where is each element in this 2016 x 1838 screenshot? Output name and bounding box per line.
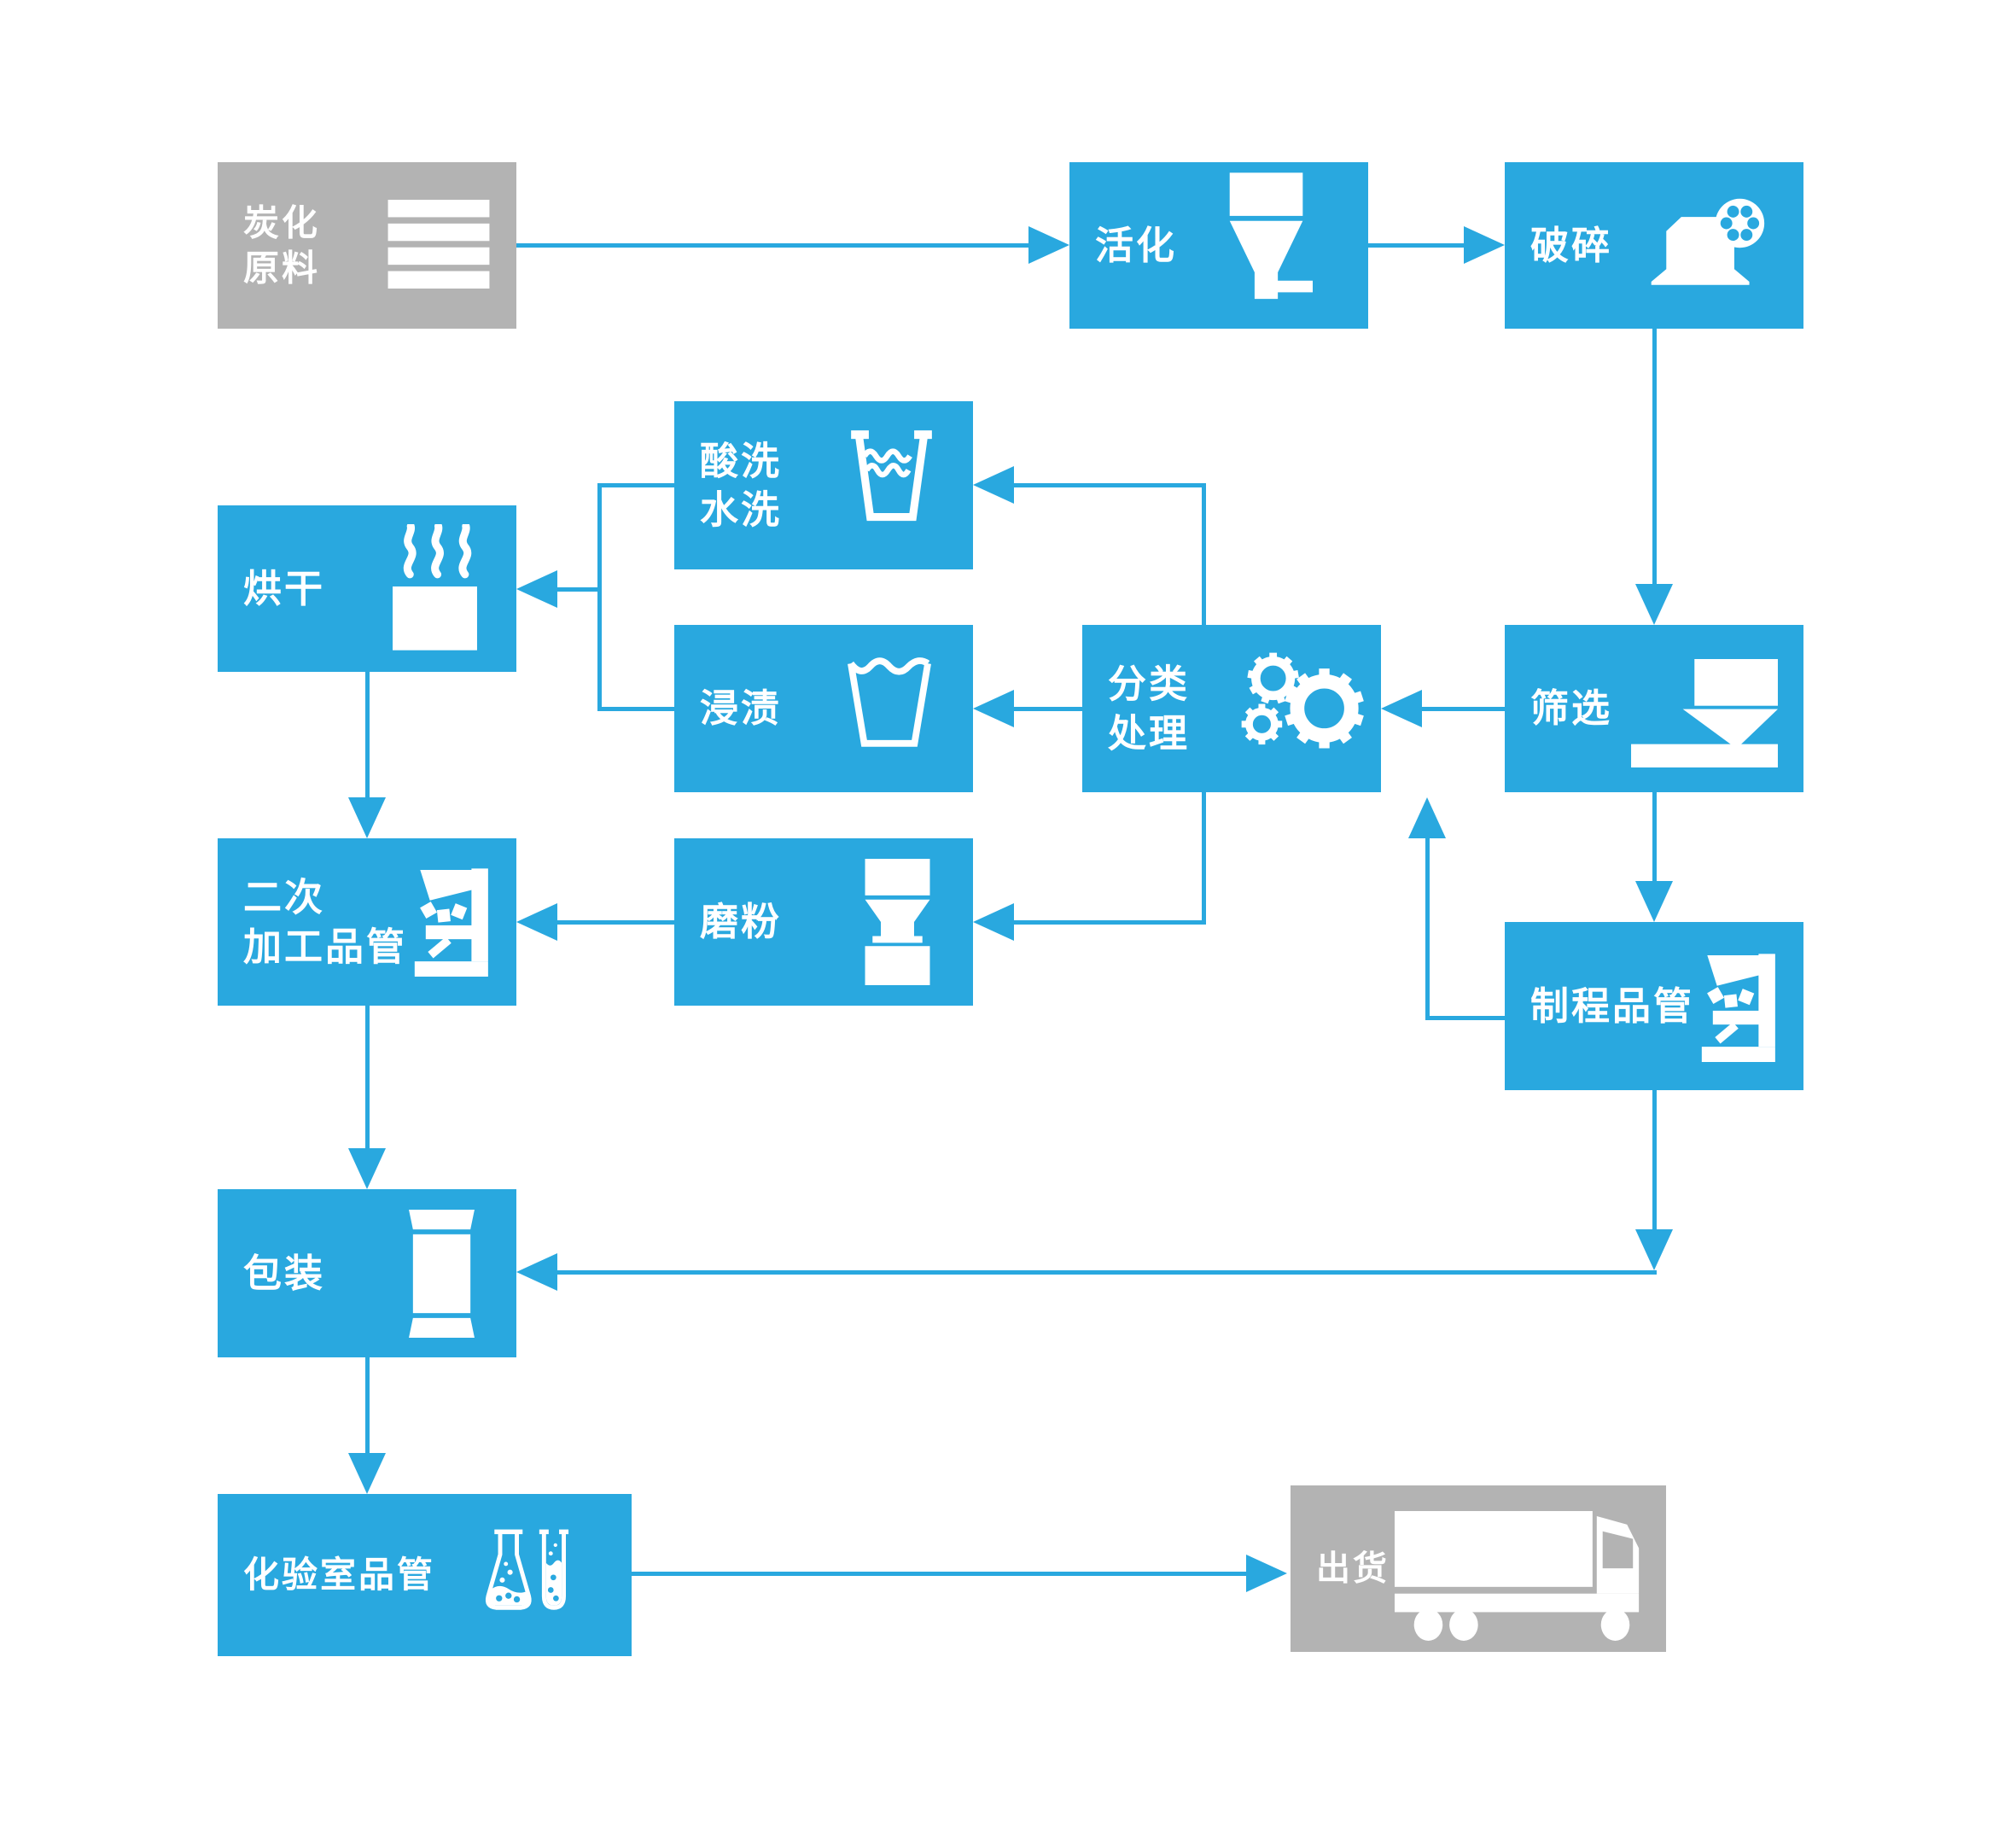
node-label: 分类 处理 xyxy=(1108,659,1190,757)
flowchart-canvas: 炭化 原料 活化 破碎 xyxy=(0,0,2016,1838)
label-line: 酸洗 xyxy=(700,439,782,482)
node-shipping: 出货 xyxy=(1291,1485,1666,1652)
node-impregnation: 浸渍 xyxy=(674,625,973,792)
node-carbonized-raw-material: 炭化 原料 xyxy=(218,162,516,329)
node-activation: 活化 xyxy=(1069,162,1368,329)
arrowhead-right-icon xyxy=(1246,1555,1287,1592)
package-icon xyxy=(407,1210,476,1338)
node-packaging: 包装 xyxy=(218,1189,516,1357)
edge-acidwash-junction-stub xyxy=(597,483,676,487)
label-line: 炭化 xyxy=(243,202,320,242)
edge-processqc-pack-drop xyxy=(1652,1090,1657,1229)
node-label: 包装 xyxy=(243,1249,325,1298)
arrowhead-down-icon xyxy=(348,1453,386,1494)
wash-cup-icon xyxy=(848,430,935,524)
arrowhead-down-icon xyxy=(1635,584,1673,625)
label-line: 原料 xyxy=(243,248,320,289)
node-label: 活化 xyxy=(1095,221,1177,271)
mill-icon xyxy=(865,859,930,985)
edge-secondaryqc-pack-line xyxy=(365,1006,370,1148)
node-crushing: 破碎 xyxy=(1505,162,1803,329)
arrowhead-down-icon xyxy=(1635,1229,1673,1270)
node-laboratory-qc: 化验室品管 xyxy=(218,1494,632,1656)
edge-classify-acidwash-riser xyxy=(1202,485,1206,625)
node-label: 制程品管 xyxy=(1530,982,1694,1031)
sieve-icon xyxy=(1631,659,1778,767)
microscope-icon xyxy=(402,859,496,977)
arrowhead-left-icon xyxy=(1381,690,1422,727)
arrowhead-down-icon xyxy=(348,797,386,838)
node-label: 二次 加工品管 xyxy=(243,872,407,971)
soak-cup-icon xyxy=(845,657,934,750)
arrowhead-right-icon xyxy=(1028,226,1069,264)
arrowhead-left-icon xyxy=(516,1253,557,1291)
node-screening: 筛选 xyxy=(1505,625,1803,792)
node-label: 化验室品管 xyxy=(243,1552,435,1598)
arrowhead-up-icon xyxy=(1408,797,1446,838)
arrowhead-left-icon xyxy=(973,903,1014,941)
edge-classify-grind-riser xyxy=(1202,792,1206,922)
edge-activate-crush-line xyxy=(1368,243,1464,248)
label-line: 水洗 xyxy=(700,488,782,532)
label-line: 处理 xyxy=(1108,711,1190,755)
node-label: 酸洗 水洗 xyxy=(700,436,782,534)
label-line: 二次 xyxy=(243,875,325,919)
edge-processqc-classify-riser xyxy=(1425,838,1430,1020)
gears-icon xyxy=(1239,651,1366,751)
node-label: 浸渍 xyxy=(700,684,782,733)
arrowhead-left-icon xyxy=(973,690,1014,727)
edge-classify-acidwash-line xyxy=(1014,483,1206,487)
arrowhead-down-icon xyxy=(1635,881,1673,922)
edge-junction-dry-line xyxy=(557,587,600,592)
edge-grind-secondaryqc-line xyxy=(557,920,674,925)
funnel-icon xyxy=(1221,172,1313,314)
node-label: 磨粉 xyxy=(700,897,782,947)
edge-classify-impregnate-line xyxy=(1014,707,1082,711)
edge-processqc-pack-line xyxy=(557,1270,1657,1275)
layers-icon xyxy=(384,200,493,289)
crusher-icon xyxy=(1645,196,1780,293)
node-classification-processing: 分类 处理 xyxy=(1082,625,1381,792)
steam-icon xyxy=(389,524,481,652)
edge-sieve-classify-line xyxy=(1422,707,1505,711)
edge-junction-riser xyxy=(597,483,602,711)
arrowhead-left-icon xyxy=(516,570,557,608)
node-label: 炭化 原料 xyxy=(243,200,320,292)
edge-sieve-processqc-line xyxy=(1652,792,1657,881)
node-label: 破碎 xyxy=(1530,221,1612,271)
node-label: 筛选 xyxy=(1530,684,1612,733)
node-drying: 烘干 xyxy=(218,505,516,672)
edge-labqc-ship-line xyxy=(632,1572,1246,1576)
node-process-qc: 制程品管 xyxy=(1505,922,1803,1090)
arrowhead-left-icon xyxy=(973,466,1014,504)
node-label: 出货 xyxy=(1316,1547,1390,1590)
arrowhead-left-icon xyxy=(516,903,557,941)
node-label: 烘干 xyxy=(243,564,325,614)
label-line: 加工品管 xyxy=(243,925,407,968)
edge-pack-labqc-line xyxy=(365,1357,370,1453)
edge-processqc-classify-stub xyxy=(1425,1016,1505,1020)
microscope-icon xyxy=(1689,944,1783,1062)
truck-icon xyxy=(1395,1508,1647,1644)
node-secondary-processing-qc: 二次 加工品管 xyxy=(218,838,516,1006)
edge-carbonize-activate-line xyxy=(516,243,1028,248)
arrowhead-down-icon xyxy=(348,1148,386,1189)
edge-impregnate-junction-stub xyxy=(597,707,676,711)
edge-crush-sieve-line xyxy=(1652,329,1657,584)
flask-tube-icon xyxy=(481,1504,575,1641)
edge-dry-secondaryqc-line xyxy=(365,672,370,797)
label-line: 分类 xyxy=(1108,662,1190,705)
node-grinding: 磨粉 xyxy=(674,838,973,1006)
arrowhead-right-icon xyxy=(1464,226,1505,264)
edge-classify-grind-line xyxy=(1014,920,1206,925)
node-acid-water-wash: 酸洗 水洗 xyxy=(674,401,973,569)
